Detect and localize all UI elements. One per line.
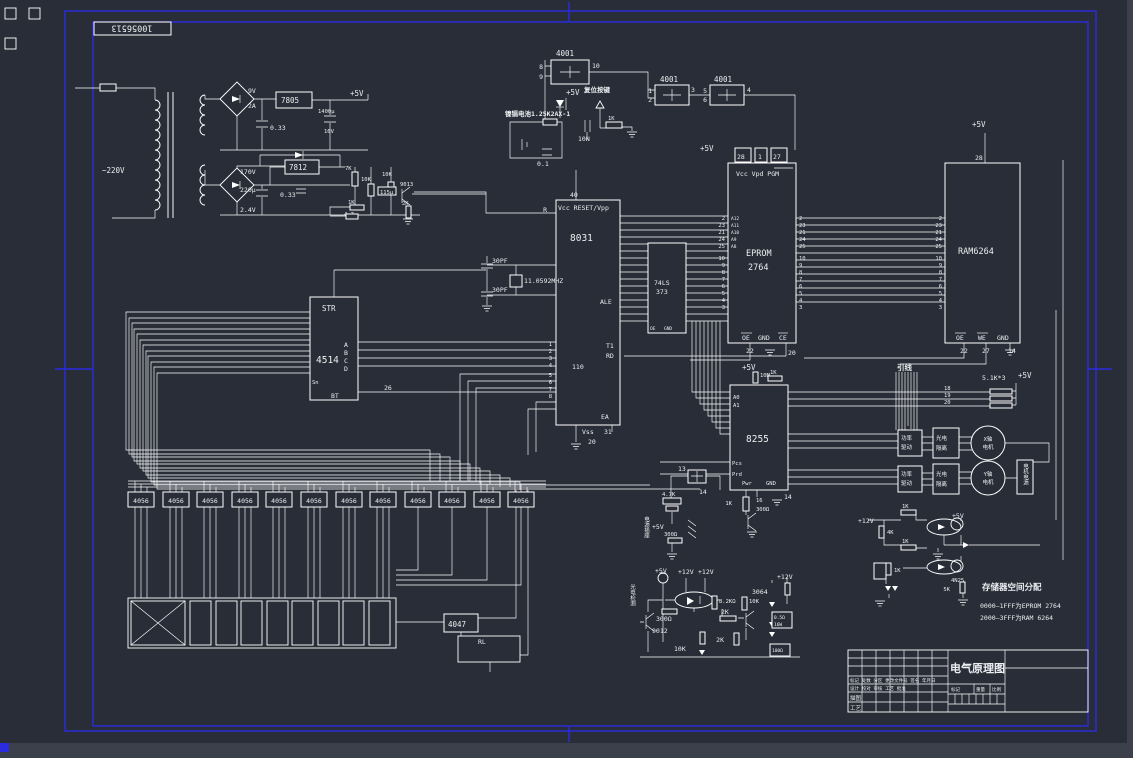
ram-lpin2: 3 bbox=[939, 305, 942, 311]
eprom-lpin2: 9 bbox=[722, 263, 725, 269]
ram-oe-pin: 22 bbox=[960, 347, 968, 355]
ram-lpin: 21 bbox=[935, 230, 942, 236]
gate4-pin14: 14 bbox=[699, 488, 707, 496]
res-82k-body bbox=[712, 596, 717, 609]
driver-chip-label: 4056 bbox=[133, 497, 149, 505]
sense-rail12a: +12V bbox=[678, 568, 694, 576]
eprom-rpin: 21 bbox=[799, 230, 806, 236]
eprom-addr: A11 bbox=[731, 223, 739, 229]
driver-chip-label: 4056 bbox=[410, 497, 426, 505]
signature-row: 设计 校对 审核 工艺 批准 bbox=[850, 685, 906, 692]
cap-033b: 0.33 bbox=[280, 191, 296, 199]
eprom-addr: A12 bbox=[731, 216, 739, 222]
iso-r4: 1K bbox=[894, 568, 901, 574]
t1-label: T1 bbox=[606, 342, 614, 350]
eprom-rpin2: 9 bbox=[799, 263, 802, 269]
res-47k-body bbox=[663, 498, 681, 504]
ram-we: WE bbox=[978, 334, 986, 342]
iso-r5: 5K bbox=[943, 587, 950, 593]
amp-label: 功率 bbox=[901, 470, 913, 478]
iso-box-x bbox=[933, 428, 959, 458]
iso-label: 光电 bbox=[936, 434, 948, 442]
driver-chip-label: 4056 bbox=[168, 497, 184, 505]
amp-label: 驱动 bbox=[901, 444, 913, 451]
gate1-type: 4001 bbox=[556, 49, 574, 58]
transistor-9013-label: 9013 bbox=[400, 182, 413, 188]
res-7k-body bbox=[352, 172, 358, 186]
res-100: 100Ω bbox=[772, 648, 783, 654]
pio-rail: +5V bbox=[742, 363, 756, 372]
res-2k-b-body bbox=[734, 633, 739, 645]
driver-chip-label: 4056 bbox=[271, 497, 287, 505]
pio-pcs: Pcs bbox=[732, 461, 742, 467]
decoder-str: STR bbox=[322, 304, 336, 313]
rl-label: RL bbox=[478, 638, 486, 646]
sense-rail12c: +12V bbox=[777, 573, 793, 581]
p1-pin: 5 bbox=[549, 373, 552, 379]
q-9012: 9012 bbox=[652, 627, 668, 635]
pio-res-300: 300Ω bbox=[756, 507, 770, 513]
cell-scale: 比例 bbox=[992, 686, 1001, 693]
ram-lpin2: 9 bbox=[939, 263, 942, 269]
sec2-voltage: 170V bbox=[240, 168, 256, 176]
latch-74ls373: 74LS 373 OE GND bbox=[648, 243, 686, 333]
iso-rail12: +12V bbox=[858, 517, 874, 525]
res-1k-pio-body bbox=[768, 376, 782, 381]
rnet-body bbox=[990, 389, 1012, 394]
eprom-rpin: 24 bbox=[799, 237, 806, 243]
schematic-drawing: 10056513 ~220V 9V 2A 0.33 7805 +5V 1400μ… bbox=[0, 0, 1133, 758]
rd-label: RD bbox=[606, 352, 614, 360]
eprom-rail: +5V bbox=[700, 144, 714, 153]
window-right-strip bbox=[1127, 0, 1133, 758]
res-10k-a: 10K bbox=[674, 645, 686, 653]
res-10k-c: 10K bbox=[749, 599, 760, 605]
q-3064: 3064 bbox=[752, 588, 768, 596]
driver-chip-label: 4056 bbox=[202, 497, 218, 505]
res-1k-reset: 1K bbox=[608, 116, 615, 122]
res-2k-a-body bbox=[720, 616, 736, 621]
iso-module bbox=[874, 563, 886, 579]
gate2-in1: 1 bbox=[648, 87, 652, 95]
buzzer-rail: +5V bbox=[652, 523, 664, 531]
p1-pin: 1 bbox=[549, 342, 552, 348]
gate2-in2: 2 bbox=[648, 96, 652, 104]
eprom-rpin2: 10 bbox=[799, 256, 806, 262]
harness-rail: +5V bbox=[1018, 371, 1032, 380]
decoder-sn: Sn bbox=[312, 380, 319, 386]
pio-a0: A0 bbox=[733, 395, 740, 401]
res-10k-a: 10K bbox=[361, 177, 372, 183]
gate2-type: 4001 bbox=[660, 75, 678, 84]
pio-res-1k2: 1K bbox=[725, 501, 732, 507]
eprom-lpin: 2 bbox=[722, 216, 725, 222]
eprom-rpin2: 7 bbox=[799, 277, 802, 283]
gate3-type: 4001 bbox=[714, 75, 732, 84]
gate3-out: 4 bbox=[747, 86, 751, 94]
res-aux-body bbox=[666, 506, 678, 511]
cell-weight: 重量 bbox=[976, 686, 985, 693]
motor-y-line2: 电机 bbox=[982, 478, 994, 486]
cap-30pf-b: 30PF bbox=[492, 286, 508, 294]
res-2k-body bbox=[406, 206, 411, 218]
ram-lpin2: 10 bbox=[935, 256, 942, 262]
eprom-lpin2: 7 bbox=[722, 277, 725, 283]
vss-pin: 20 bbox=[588, 438, 596, 446]
eprom-oe: OE bbox=[742, 334, 750, 342]
res-05-w: 16W bbox=[774, 622, 782, 628]
iso-label: 隔离 bbox=[936, 444, 948, 452]
rnet-label: 5.1K*3 bbox=[982, 374, 1006, 382]
latch-name1: 74LS bbox=[654, 279, 670, 287]
eprom-rpin: 25 bbox=[799, 244, 806, 250]
decoder-d: D bbox=[344, 365, 348, 373]
rnet-body bbox=[990, 403, 1012, 408]
eprom-lpin: 23 bbox=[718, 223, 725, 229]
ram-lpin2: 8 bbox=[939, 270, 942, 276]
wire-19: 19 bbox=[944, 393, 951, 399]
eprom-ce: CE bbox=[779, 334, 787, 342]
res-47-body bbox=[346, 214, 358, 219]
eprom-pin27: 27 bbox=[773, 153, 781, 161]
res-05: 0.5Ω bbox=[774, 615, 785, 621]
amp-box-y bbox=[898, 466, 922, 492]
eprom-rpin2: 5 bbox=[799, 291, 802, 297]
battery-label: 镍镉电池1.25K2AX-1 bbox=[505, 109, 570, 118]
bus-26-label: 26 bbox=[384, 384, 392, 392]
eprom-lpin2: 8 bbox=[722, 270, 725, 276]
eprom-lpin2: 3 bbox=[722, 305, 725, 311]
eprom-name2: 2764 bbox=[748, 263, 768, 273]
cap-033a: 0.33 bbox=[270, 124, 286, 132]
iso-r1-body bbox=[901, 510, 916, 515]
rnet-body bbox=[990, 396, 1012, 401]
res-7k: 7K bbox=[345, 166, 352, 172]
ram-lpin2: 6 bbox=[939, 284, 942, 290]
iso-r2-body bbox=[879, 526, 884, 538]
regulator-7805-label: 7805 bbox=[281, 96, 299, 105]
res-300-body bbox=[668, 538, 682, 543]
ram-lpin: 25 bbox=[935, 244, 942, 250]
ram-name: RAM6264 bbox=[958, 247, 994, 257]
ea-label: EA bbox=[601, 413, 609, 421]
fuse bbox=[100, 84, 116, 91]
eprom-rpin: 2 bbox=[799, 216, 802, 222]
battery-res-body bbox=[543, 119, 557, 125]
latch-gnd: GND bbox=[664, 326, 672, 332]
iso-r4-body bbox=[886, 563, 891, 575]
harness-label: 引线 bbox=[897, 362, 912, 372]
status-corner bbox=[0, 743, 9, 752]
res-1k-reset-body bbox=[606, 122, 622, 128]
latch-name2: 373 bbox=[656, 288, 668, 296]
vss-label: Vss bbox=[582, 428, 594, 436]
eprom-oe-pin: 22 bbox=[746, 347, 754, 355]
res-10k-b: 10K bbox=[382, 172, 393, 178]
decoder-a: A bbox=[344, 341, 348, 349]
p1-pin: 7 bbox=[549, 387, 552, 393]
stamp-number: 10056513 bbox=[112, 23, 153, 33]
net-110: 110 bbox=[572, 363, 584, 371]
amp-label: 驱动 bbox=[901, 480, 913, 487]
regulator-7812-label: 7812 bbox=[289, 163, 307, 172]
cell-trace: 描图 bbox=[850, 694, 862, 702]
drawing-title: 电气原理图 bbox=[950, 661, 1005, 675]
res-2k-a: 2K bbox=[721, 608, 729, 616]
wire-20: 20 bbox=[944, 400, 951, 406]
driver-chip-label: 4056 bbox=[375, 497, 391, 505]
crystal-freq: 11.0592MHZ bbox=[524, 277, 563, 285]
cap-01: 0.1 bbox=[537, 160, 549, 168]
ram-lpin: 23 bbox=[935, 223, 942, 229]
res-300: 300Ω bbox=[664, 532, 678, 538]
pio-gnd-pin: 14 bbox=[784, 493, 792, 501]
res-1k-body bbox=[350, 205, 364, 210]
pio-pin16: 16 bbox=[756, 498, 763, 504]
eprom-rpin: 23 bbox=[799, 223, 806, 229]
eprom-lpin2: 6 bbox=[722, 284, 725, 290]
eprom-pin28: 28 bbox=[737, 153, 745, 161]
driver-chip-label: 4056 bbox=[444, 497, 460, 505]
iso-rail5: +5V bbox=[952, 512, 964, 520]
res-300-sense: 300Ω bbox=[656, 615, 672, 623]
decoder-name: 4514 bbox=[316, 355, 339, 366]
motor-y-line1: Y轴 bbox=[984, 470, 993, 478]
connector-label: 电源插座 bbox=[643, 515, 650, 540]
iso-box-y bbox=[933, 464, 959, 494]
eprom-rpin2: 6 bbox=[799, 284, 802, 290]
motor-y bbox=[971, 461, 1005, 495]
driver-chip-label: 4056 bbox=[479, 497, 495, 505]
memo-title: 存储器空间分配 bbox=[981, 582, 1042, 593]
cell-process: 工艺 bbox=[850, 705, 862, 712]
eprom-pin1: 1 bbox=[758, 153, 762, 161]
amp-box-x bbox=[898, 430, 922, 456]
res-82k: 8.2KΩ bbox=[719, 599, 736, 605]
latch-oe: OE bbox=[650, 326, 656, 332]
ale-label: ALE bbox=[600, 298, 612, 306]
ram-gnd: GND bbox=[997, 334, 1009, 342]
decoder-b: B bbox=[344, 349, 348, 357]
eprom-ce-pin: 20 bbox=[788, 349, 796, 357]
cap-1400u-voltage: 16V bbox=[324, 129, 335, 135]
res-10k-b-body bbox=[700, 632, 705, 644]
eprom-rpin2: 8 bbox=[799, 270, 802, 276]
driver-chip-label: 4056 bbox=[237, 497, 253, 505]
p1-pin: 8 bbox=[549, 394, 552, 400]
decoder-bt: BT bbox=[331, 392, 339, 400]
driver-chip-label: 4056 bbox=[341, 497, 357, 505]
res-2k-b: 2K bbox=[716, 636, 724, 644]
sense-vlabel: 光电检测 bbox=[629, 583, 636, 608]
ea-pin: 31 bbox=[604, 428, 612, 436]
eprom-gnd: GND bbox=[758, 334, 770, 342]
revision-row: 标记 处数 分区 更改文件号 签名 年月日 bbox=[850, 677, 936, 684]
rail-5v: +5V bbox=[350, 89, 364, 98]
iso-r1: 1K bbox=[902, 504, 909, 510]
ram-lpin2: 7 bbox=[939, 277, 942, 283]
motor-psu-label: 电机电源 bbox=[1022, 462, 1029, 487]
p1-pin: 3 bbox=[549, 356, 552, 362]
iso-r3: 1K bbox=[902, 539, 909, 545]
eprom-addr: A8 bbox=[731, 244, 737, 250]
amp-label: 功率 bbox=[901, 434, 913, 442]
eprom-addr: A10 bbox=[731, 230, 739, 236]
p1-pin: 6 bbox=[549, 380, 552, 386]
iso-r3-body bbox=[901, 545, 916, 550]
cell-mark: 标记 bbox=[951, 686, 960, 693]
reset-net-label: R bbox=[543, 206, 547, 214]
res-47k: 4.7K bbox=[662, 492, 676, 498]
iso-r5-body bbox=[960, 582, 965, 593]
cpu-name: 8031 bbox=[570, 233, 593, 244]
res-300-sense-body bbox=[662, 609, 677, 614]
sense-rail12b: +12V bbox=[698, 568, 714, 576]
gate2-out: 3 bbox=[691, 86, 695, 94]
motor-x bbox=[971, 426, 1005, 460]
iso-r2: 4K bbox=[887, 530, 894, 536]
motor-x-line1: X轴 bbox=[984, 435, 993, 443]
res-1k2-body bbox=[743, 497, 749, 511]
mains-label: ~220V bbox=[102, 166, 125, 175]
res-10m-body bbox=[753, 372, 758, 383]
ram-oe: OE bbox=[956, 334, 964, 342]
chip-4047-label: 4047 bbox=[448, 620, 466, 629]
res-10k-a-body bbox=[368, 184, 374, 196]
reset-key-label: 复位按键 bbox=[583, 85, 611, 94]
eprom-lpin: 24 bbox=[718, 237, 725, 243]
eprom-lpin2: 10 bbox=[718, 256, 725, 262]
gate1-in2: 9 bbox=[539, 73, 543, 81]
gate1-out: 10 bbox=[592, 62, 600, 70]
cap-30pf-a: 30PF bbox=[492, 257, 508, 265]
gate1-in1: 8 bbox=[539, 63, 543, 71]
sec1-current: 2A bbox=[248, 102, 256, 110]
motor-x-line2: 电机 bbox=[982, 443, 994, 451]
cap-115u: 115μ bbox=[380, 190, 394, 196]
reset-rail-5v: +5V bbox=[566, 88, 580, 97]
sec1-voltage: 9V bbox=[248, 87, 256, 95]
driver-chip-label: 4056 bbox=[306, 497, 322, 505]
eprom-rpin2: 3 bbox=[799, 305, 802, 311]
pio-gnd: GND bbox=[766, 481, 776, 487]
ram-pin28: 28 bbox=[975, 154, 983, 162]
pio-a1: A1 bbox=[733, 403, 740, 409]
eprom-lpin: 25 bbox=[718, 244, 725, 250]
eprom-name1: EPROM bbox=[746, 249, 772, 259]
cpu-top-pins: Vcc RESET/Vpp bbox=[558, 204, 609, 212]
window-bottom-strip bbox=[0, 743, 1133, 758]
eprom-lpin2: 5 bbox=[722, 291, 725, 297]
eprom-lpin: 21 bbox=[718, 230, 725, 236]
memo-line1: 0000—1FFF为EPROM 2764 bbox=[980, 601, 1061, 610]
cap-10n: 10N bbox=[578, 135, 590, 143]
driver-chip-label: 4056 bbox=[513, 497, 529, 505]
pio-prd: Prd bbox=[732, 472, 742, 478]
cap-220u: 220μ bbox=[240, 186, 256, 194]
cap-1400u: 1400μ bbox=[318, 109, 335, 115]
pio-name: 8255 bbox=[746, 434, 769, 445]
crystal-body bbox=[510, 275, 522, 287]
res-10k-c-body bbox=[742, 597, 747, 610]
ram-we-pin: 27 bbox=[982, 347, 990, 355]
eprom-hdr: Vcc Vpd PGM bbox=[736, 170, 779, 178]
ram-lpin: 2 bbox=[939, 216, 942, 222]
ram-gnd-pin: 14 bbox=[1008, 347, 1016, 355]
sec2-dc: 2.4V bbox=[240, 206, 256, 214]
wire-18: 18 bbox=[944, 386, 951, 392]
pin-40: 40 bbox=[570, 191, 578, 199]
res-1k-pio: 1K bbox=[770, 370, 777, 376]
pio-pwr: Pwr bbox=[742, 481, 753, 487]
memo-line2: 2000—3FFF为RAM 6264 bbox=[980, 613, 1053, 622]
ram-rail: +5V bbox=[972, 120, 986, 129]
gate4-pin13: 13 bbox=[678, 465, 686, 473]
p1-pin: 2 bbox=[549, 349, 552, 355]
cad-canvas: 10056513 ~220V 9V 2A 0.33 7805 +5V 1400μ… bbox=[0, 0, 1133, 758]
eprom-addr: A9 bbox=[731, 237, 737, 243]
gate3-in2: 6 bbox=[703, 96, 707, 104]
iso-label: 隔离 bbox=[936, 480, 948, 488]
decoder-c: C bbox=[344, 357, 348, 365]
gate3-in1: 5 bbox=[703, 87, 707, 95]
ram-lpin2: 5 bbox=[939, 291, 942, 297]
ram-lpin: 24 bbox=[935, 237, 942, 243]
res-top-body bbox=[785, 583, 790, 595]
iso-label: 光电 bbox=[936, 470, 948, 478]
